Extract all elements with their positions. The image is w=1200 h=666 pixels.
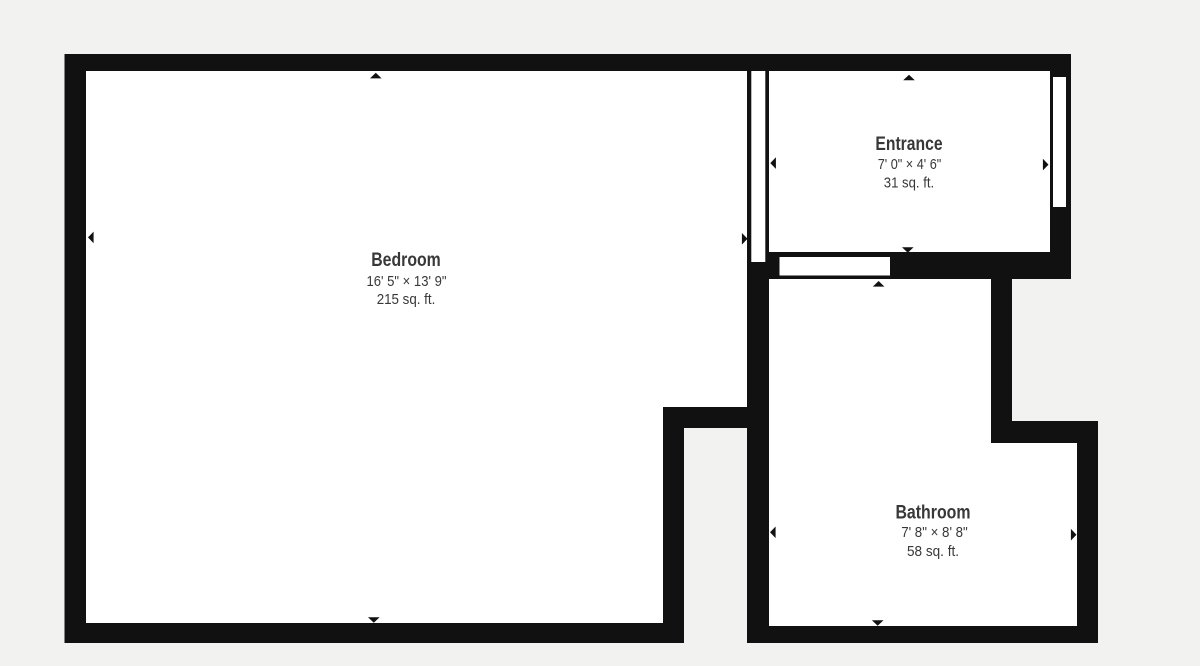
svg-text:7' 8" × 8' 8": 7' 8" × 8' 8" [901, 524, 968, 541]
svg-text:7' 0" × 4' 6": 7' 0" × 4' 6" [878, 156, 942, 173]
svg-text:Bedroom: Bedroom [371, 250, 441, 271]
svg-text:Entrance: Entrance [875, 134, 942, 155]
svg-text:215 sq. ft.: 215 sq. ft. [377, 291, 436, 308]
svg-text:58 sq. ft.: 58 sq. ft. [907, 543, 959, 560]
svg-text:31 sq. ft.: 31 sq. ft. [884, 174, 934, 191]
svg-text:16' 5" × 13' 9": 16' 5" × 13' 9" [367, 273, 447, 290]
svg-text:Bathroom: Bathroom [895, 502, 970, 523]
